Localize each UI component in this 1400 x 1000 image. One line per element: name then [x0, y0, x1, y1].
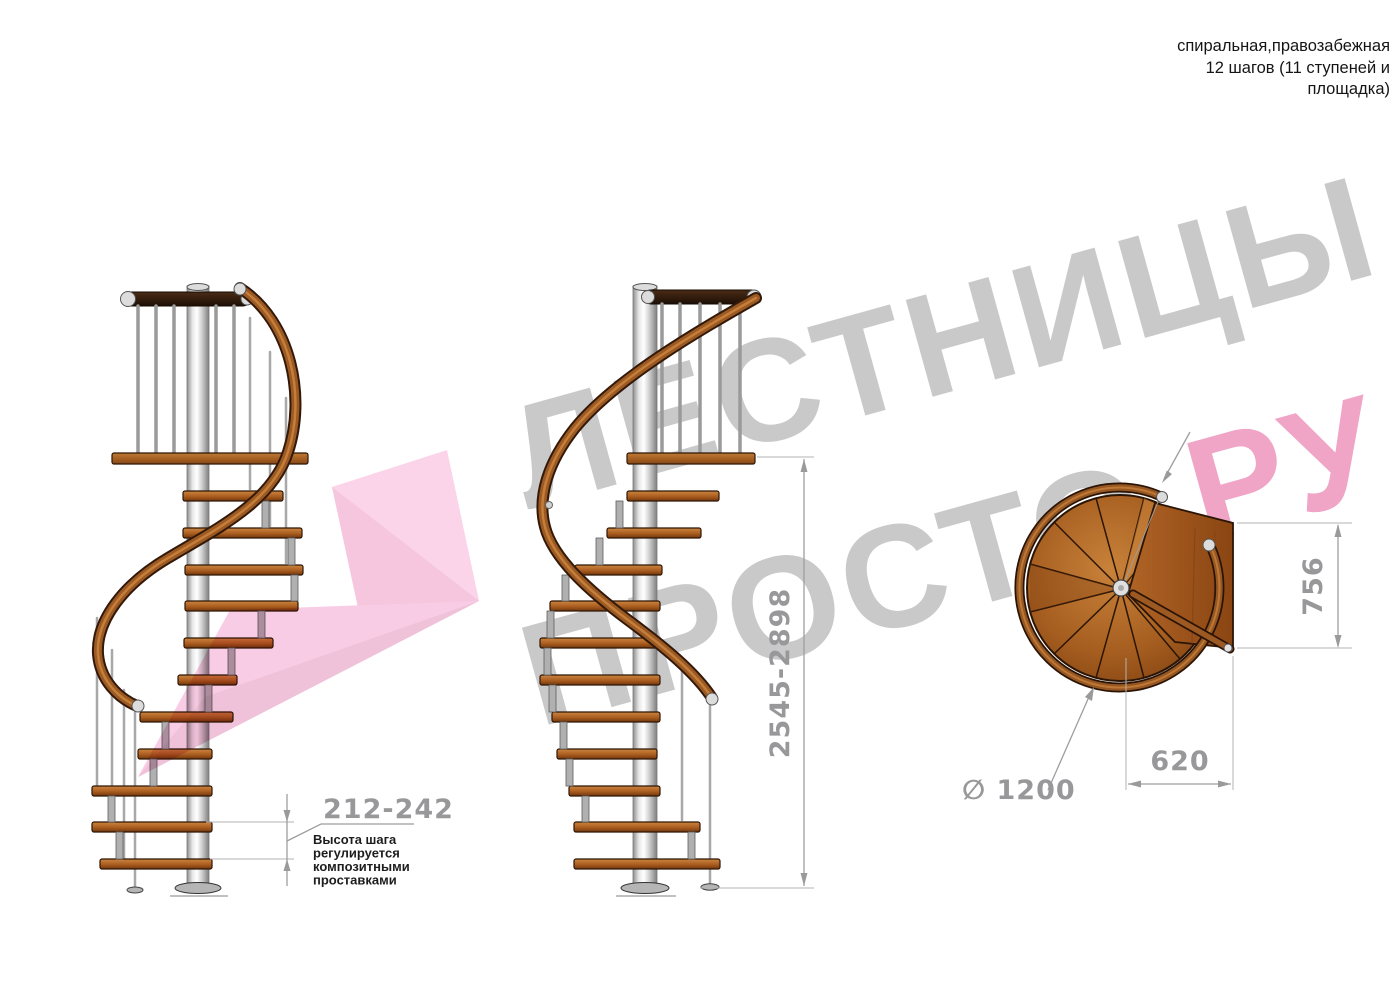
- title-line: спиральная,правозабежная: [1060, 36, 1390, 58]
- title-line: площадка): [1060, 79, 1390, 101]
- title-block: спиральная,правозабежная 12 шагов (11 ст…: [1060, 36, 1390, 101]
- watermark-arrow: [0, 0, 1400, 1000]
- title-line: 12 шагов (11 ступеней и: [1060, 58, 1390, 80]
